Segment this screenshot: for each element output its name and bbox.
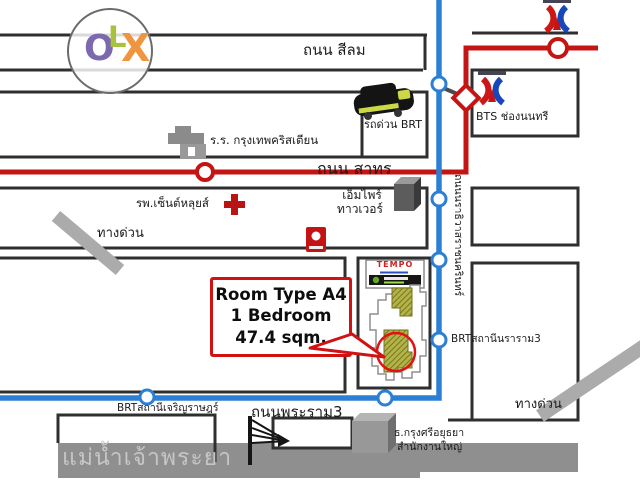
road-label-silom: ถนน สีลม: [303, 42, 366, 59]
bts-logo-icon: [543, 0, 571, 31]
hospital-label: รพ.เซ็นต์หลุยส์: [136, 197, 209, 210]
condo-location-map: ถนน สีลม ถนน สาทร รถด่วน BRT ร.ร. กรุงเท…: [0, 0, 640, 480]
olx-logo: O L X: [67, 8, 153, 94]
station-dot-icon: [549, 39, 567, 57]
empire-tower-icon: [394, 177, 421, 211]
station-dot-icon: [378, 391, 392, 405]
station-dot-icon: [432, 77, 446, 91]
bank-building-icon: [352, 413, 396, 453]
brt-express-label: รถด่วน BRT: [350, 119, 422, 131]
bts-chongnonsi-label: BTS ช่องนนทรี: [476, 111, 548, 123]
brt-nararam-station-label: BRTสถานีนราราม3: [451, 334, 541, 346]
empire-tower-label-2: ทาวเวอร์: [330, 203, 390, 216]
project-sign-label: TEMPO: [368, 261, 422, 270]
station-dot-icon: [432, 253, 446, 267]
road-label-naradhiwas: ถนนนราธิวาสราชนครินทร์: [451, 174, 463, 296]
station-dot-icon: [432, 333, 446, 347]
road-label-rama3: ถนนพระราม3: [251, 404, 343, 421]
brt-charoenrat-station-label: BRTสถานีเจริญราษฎร์: [117, 403, 218, 415]
station-dot-icon: [432, 192, 446, 206]
expressway-left-label: ทางด่วน: [97, 227, 144, 241]
school-label: ร.ร. กรุงเทพคริสเตียน: [210, 134, 318, 147]
river-label: แม่น้ำเจ้าพระยา: [62, 446, 232, 471]
bank-label-1: ธ.กรุงศรีอยุธยา: [394, 428, 464, 440]
bank-label-2: สำนักงานใหญ่: [397, 442, 462, 454]
callout-bedrooms: 1 Bedroom: [213, 305, 349, 326]
callout-room-type: Room Type A4: [213, 284, 349, 305]
shrine-icon: [306, 227, 326, 252]
expressway-right-label: ทางด่วน: [515, 398, 562, 412]
olx-letter-x: X: [121, 26, 150, 70]
empire-tower-label-1: เอ็มไพร์: [332, 189, 392, 202]
road-label-sathorn: ถนน สาทร: [317, 160, 392, 178]
callout-pointer: [300, 326, 392, 364]
station-dot-icon: [197, 164, 213, 180]
